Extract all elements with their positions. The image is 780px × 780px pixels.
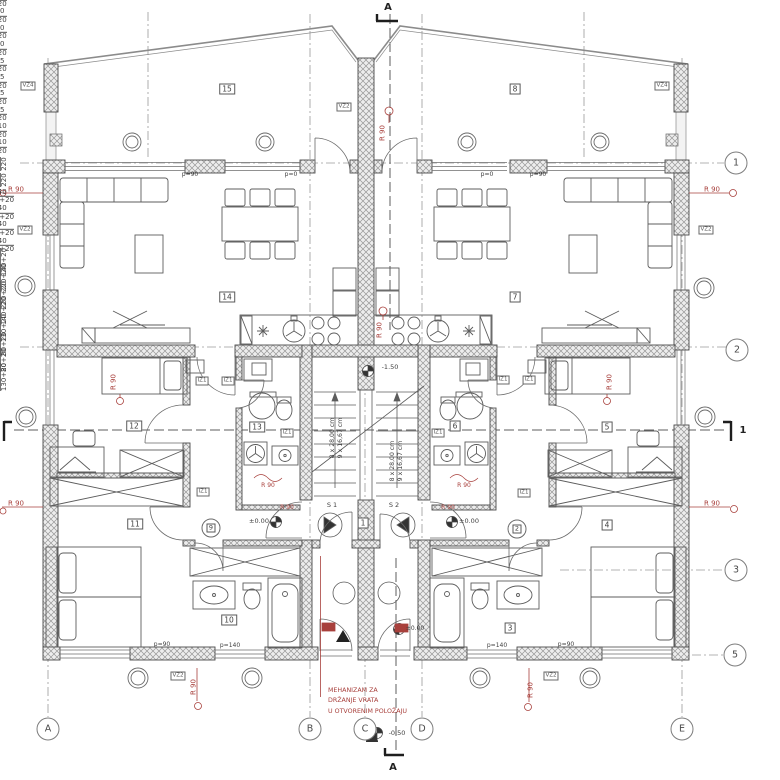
wall-tag-iz1: IZ1 xyxy=(281,429,294,438)
section-marker-1-right: 1 xyxy=(740,426,747,436)
dim-parapet: p=0 xyxy=(285,172,298,178)
grid-bubble-2: 2 xyxy=(726,339,749,362)
dim-door-75x220: 75220 xyxy=(0,74,390,90)
wall-tag-iz1: IZ1 xyxy=(432,429,445,438)
wall-tag-vz2: VZ2 xyxy=(17,226,32,235)
dim-parapet: p=140 xyxy=(220,643,240,649)
wall-tag-vz2: VZ2 xyxy=(170,672,185,681)
room-label-4: 4 xyxy=(602,520,613,531)
dim-window-140x130: 140130+20 xyxy=(0,237,390,253)
wall-tag-vz2: VZ2 xyxy=(543,672,558,681)
dim-window-140x130: 140130+20 xyxy=(0,221,390,237)
wall-tag-iz1: IZ1 xyxy=(197,488,210,497)
dim-door-75x220: 75220 xyxy=(0,57,390,73)
stair-dims-left: 8 x 28,00 cm9 x 16,67 cm xyxy=(329,418,345,459)
dim-window-140x130: 140130+20 xyxy=(0,188,390,204)
wall-tag-iz1: IZ1 xyxy=(497,376,510,385)
level-minus-050: -0.50 xyxy=(389,730,406,737)
dim-door-90x220: 90220 xyxy=(0,8,390,24)
wall-tag-iz1: IZ1 xyxy=(222,377,235,386)
room-label-10: 10 xyxy=(221,615,237,626)
red-note-r90: R 90 xyxy=(380,125,387,141)
dim-door-90x220: 90220 xyxy=(0,0,390,8)
red-note-r90: R 90 xyxy=(280,505,294,511)
wall-tag-vz2: VZ2 xyxy=(698,226,713,235)
red-note-r90: R 90 xyxy=(457,483,471,489)
red-note-r90: R 90 xyxy=(607,374,614,390)
red-note-r90: R 90 xyxy=(704,187,720,194)
red-note-r90: R 90 xyxy=(528,682,535,698)
grid-bubble-b: B xyxy=(299,718,322,741)
wall-tag-iz1: IZ1 xyxy=(523,376,536,385)
stair-label-s2: S 2 xyxy=(389,502,399,509)
grid-bubble-a: A xyxy=(37,718,60,741)
grid-bubble-c: C xyxy=(354,718,377,741)
level-zero-entry: ±0.00 xyxy=(406,626,424,632)
red-note-r90: R 90 xyxy=(704,501,720,508)
level-zero-left: ±0.00 xyxy=(249,518,269,525)
dim-door-75x220: 75220 xyxy=(0,106,390,122)
dim-door-75x220: 75220 xyxy=(0,90,390,106)
room-label-2: 2 xyxy=(508,520,527,539)
red-note-r90: R 90 xyxy=(261,483,275,489)
dim-window-140x130: 140130+20 xyxy=(0,0,8,767)
grid-bubble-3: 3 xyxy=(725,559,748,582)
section-marker-a-bottom: A xyxy=(389,763,397,773)
dim-door-110x220: 110220 xyxy=(0,139,390,155)
red-note-r90: R 90 xyxy=(111,374,118,390)
dim-door-90x220: 90220 xyxy=(0,41,390,57)
room-label-7: 7 xyxy=(510,292,521,303)
floor-plan: 15 8 14 7 13 6 12 5 11 4 10 3 1 9 2 A B … xyxy=(0,0,780,780)
stair-dims-right: 8 x 28,00 cm9 x 16,67 cm xyxy=(389,441,405,482)
room-label-8: 8 xyxy=(510,84,521,95)
room-label-6: 6 xyxy=(450,421,461,432)
grid-bubble-5: 5 xyxy=(724,644,747,667)
door-mechanism-note: MEHANIZAM ZA DRŽANJE VRATA U OTVORENIM P… xyxy=(328,686,407,717)
dim-door-110x220: 110220 xyxy=(0,123,390,139)
dim-parapet: p=140 xyxy=(487,643,507,649)
dim-door-90x220: 90220 xyxy=(0,25,390,41)
room-label-14: 14 xyxy=(219,292,235,303)
wall-tag-vz2: VZ2 xyxy=(336,103,351,112)
dim-parapet: p=90 xyxy=(182,172,198,178)
red-note-r90: R 90 xyxy=(8,501,24,508)
red-note-r90: R 90 xyxy=(191,679,198,695)
wall-tag-vz4: VZ4 xyxy=(20,82,35,91)
wall-tag-vz4: VZ4 xyxy=(654,82,669,91)
room-label-13: 13 xyxy=(249,422,265,433)
red-note-r90: R 90 xyxy=(441,505,455,511)
room-label-9: 9 xyxy=(202,519,221,538)
dim-window-140x130: 140130+20 xyxy=(0,205,390,221)
wall-tag-iz1: IZ1 xyxy=(518,489,531,498)
room-label-12: 12 xyxy=(126,421,142,432)
wall-tag-iz1: IZ1 xyxy=(196,377,209,386)
level-zero-right: ±0.00 xyxy=(459,518,479,525)
grid-bubble-e: E xyxy=(671,718,694,741)
room-label-1: 1 xyxy=(358,518,369,529)
level-minus-150: -1.50 xyxy=(382,364,399,371)
dim-parapet: p=0 xyxy=(481,172,494,178)
room-label-11: 11 xyxy=(127,519,143,530)
room-label-5: 5 xyxy=(602,422,613,433)
stair-label-s1: S 1 xyxy=(327,502,337,509)
red-note-r90: R 90 xyxy=(8,187,24,194)
dim-parapet: p=90 xyxy=(530,172,546,178)
grid-bubble-d: D xyxy=(411,718,434,741)
red-note-r90: R 90 xyxy=(377,322,384,338)
dim-parapet: p=90 xyxy=(154,642,170,648)
grid-bubble-1: 1 xyxy=(725,152,748,175)
room-label-3: 3 xyxy=(505,623,516,634)
dim-parapet: p=90 xyxy=(558,642,574,648)
